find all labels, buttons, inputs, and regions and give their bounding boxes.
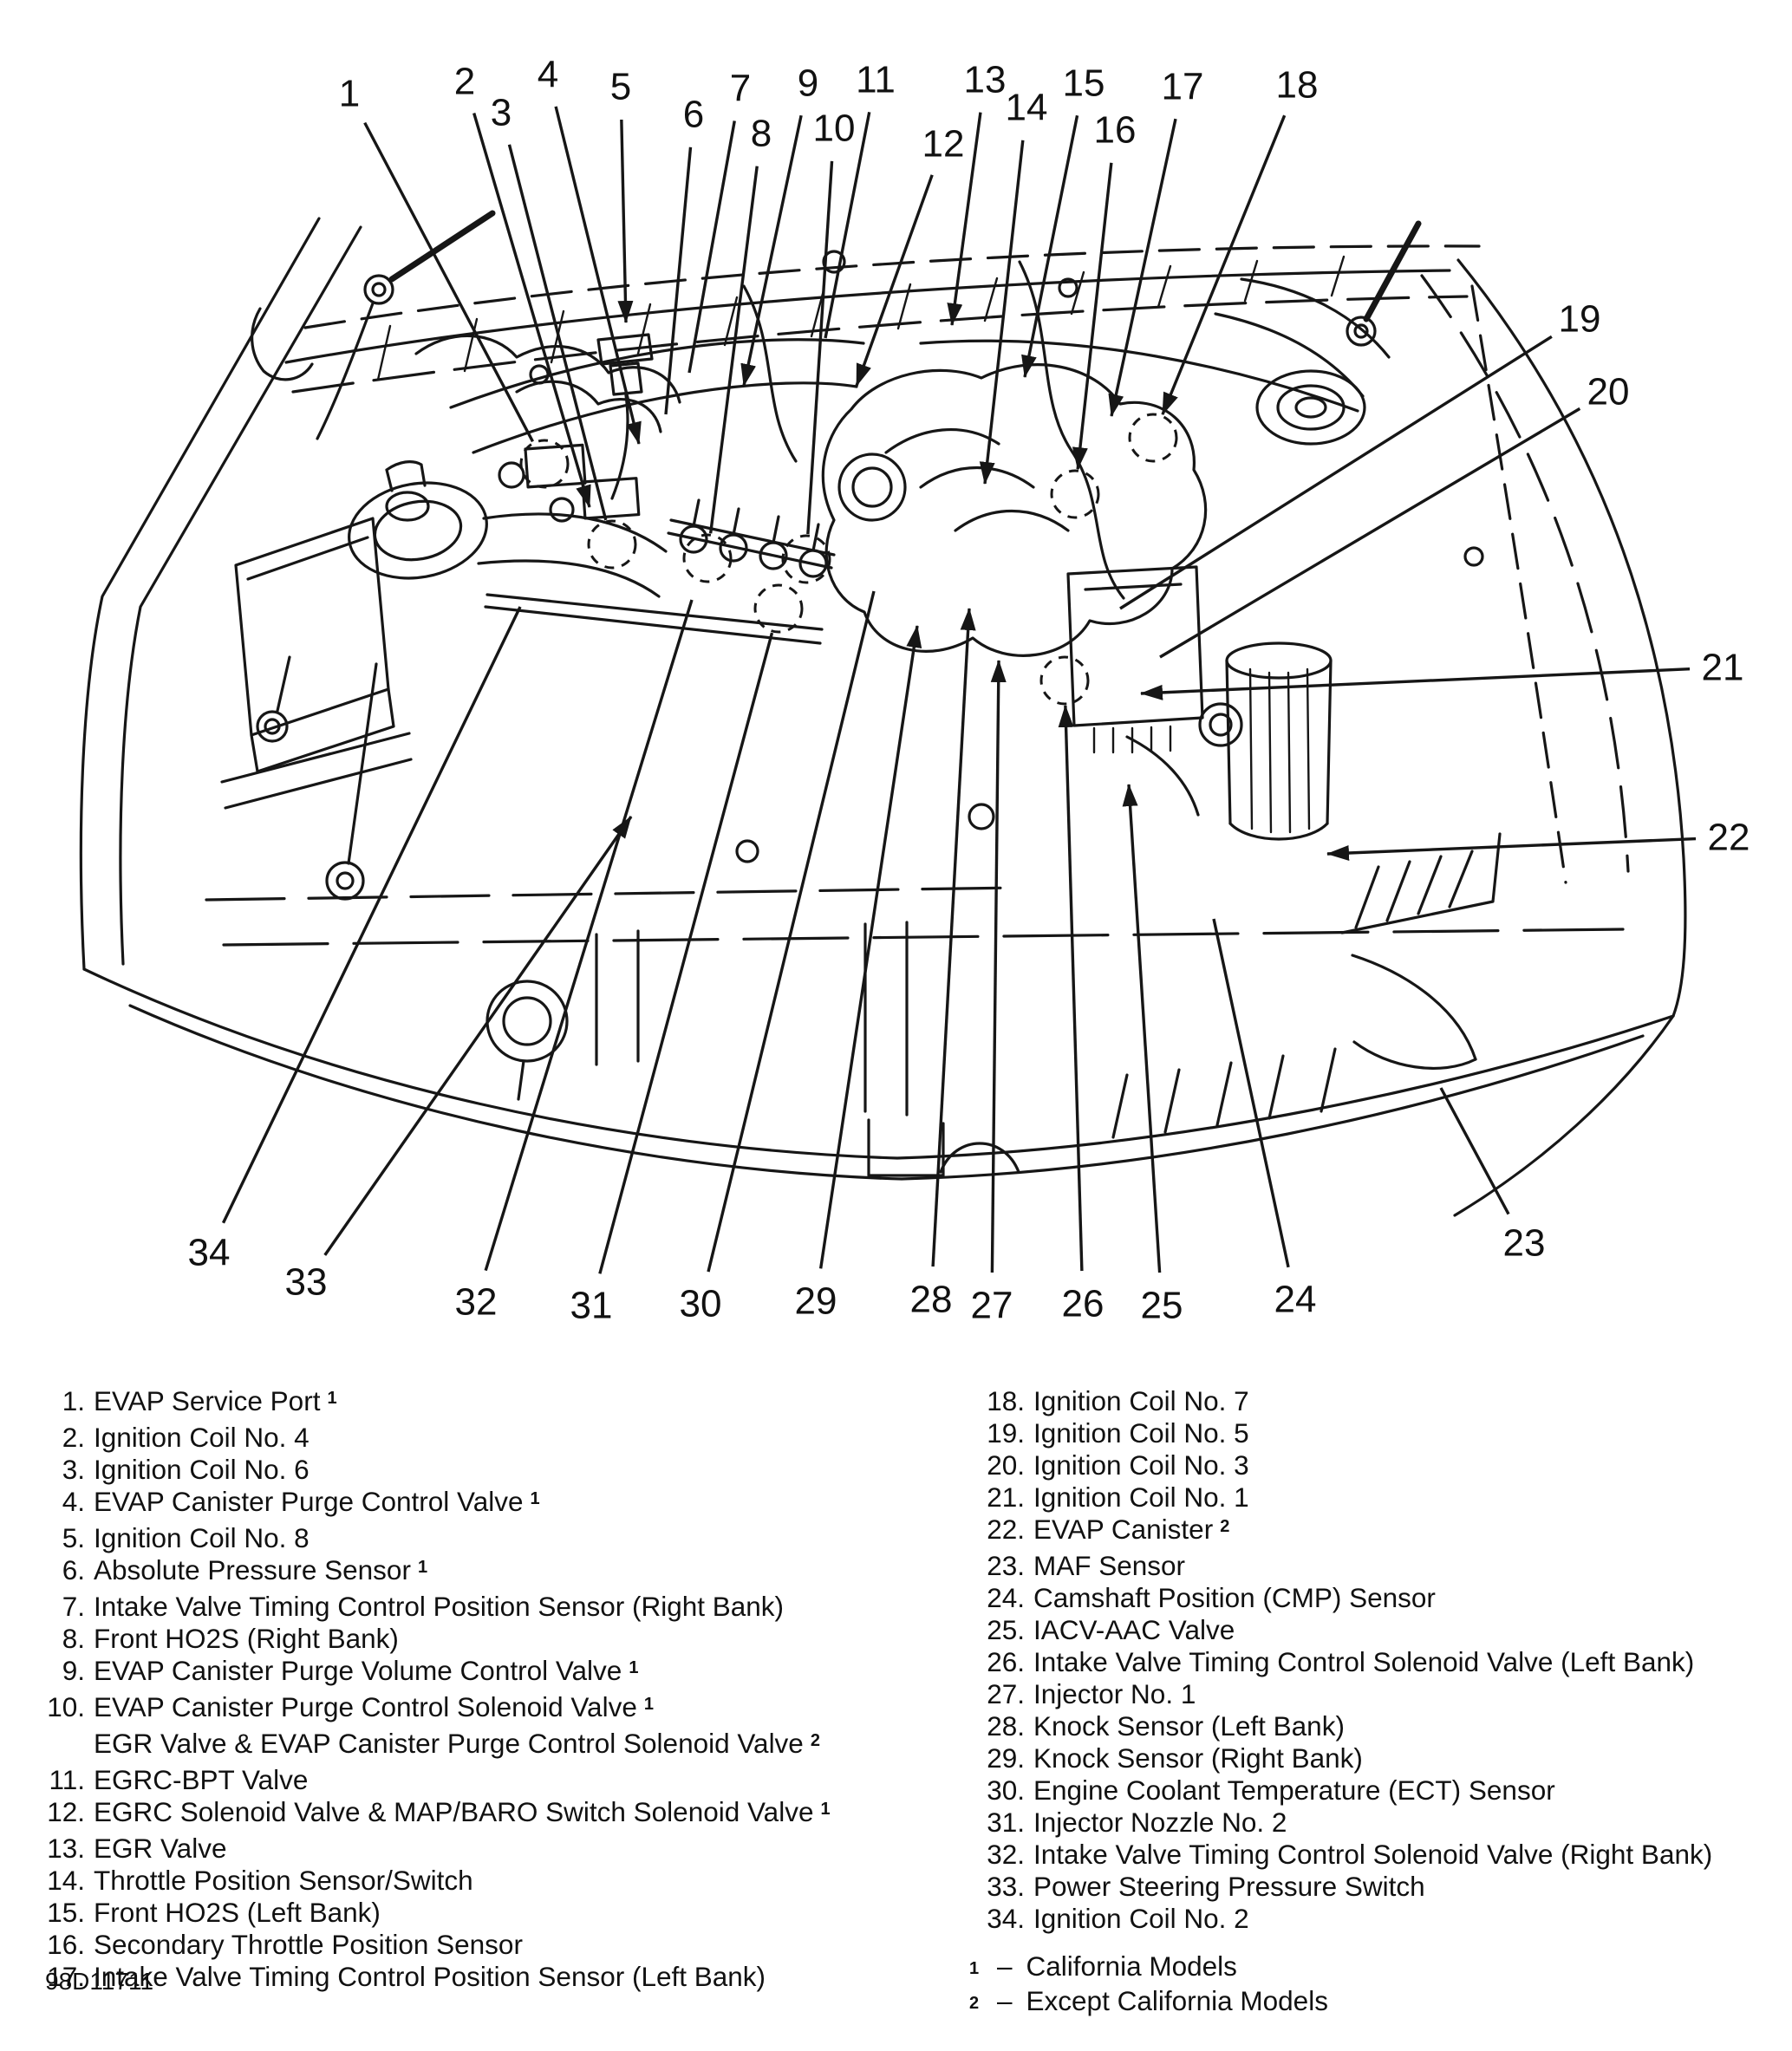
legend-item: 5.Ignition Coil No. 8	[42, 1522, 831, 1554]
legend-item-number: 19.	[969, 1417, 1025, 1449]
legend-item-label: Ignition Coil No. 2	[1033, 1903, 1249, 1935]
callout-number-10: 10	[813, 107, 856, 150]
legend-item: 24.Camshaft Position (CMP) Sensor	[969, 1582, 1712, 1614]
callout-number-13: 13	[964, 59, 1007, 101]
leader-line-33	[325, 817, 631, 1255]
legend-item-label: EGR Valve & EVAP Canister Purge Control …	[94, 1728, 820, 1764]
legend-item-label: Absolute Pressure Sensor1	[94, 1554, 427, 1591]
callout-number-31: 31	[570, 1285, 613, 1327]
legend-item: 23.MAF Sensor	[969, 1550, 1712, 1582]
callout-number-4: 4	[538, 54, 558, 96]
footnote-marker: 1	[629, 1658, 638, 1677]
legend-item-number: 5.	[42, 1522, 85, 1554]
legend-item: 32.Intake Valve Timing Control Solenoid …	[969, 1839, 1712, 1871]
legend-item-label: EVAP Canister Purge Volume Control Valve…	[94, 1655, 638, 1691]
callout-number-17: 17	[1162, 66, 1204, 108]
legend-item-number: 25.	[969, 1614, 1025, 1646]
legend-item-number: 22.	[969, 1514, 1025, 1550]
callout-number-11: 11	[856, 59, 896, 101]
legend-item-label: Secondary Throttle Position Sensor	[94, 1929, 523, 1961]
legend-item-label: EVAP Service Port1	[94, 1385, 337, 1422]
legend-item: 10.EVAP Canister Purge Control Solenoid …	[42, 1691, 831, 1728]
legend-item-label: Front HO2S (Left Bank)	[94, 1897, 381, 1929]
callout-number-7: 7	[730, 68, 751, 110]
callout-number-20: 20	[1587, 371, 1630, 413]
legend-item-label: Intake Valve Timing Control Solenoid Val…	[1033, 1646, 1694, 1678]
leader-line-19	[1120, 336, 1552, 609]
footnote-marker: 2	[811, 1731, 820, 1750]
callout-number-26: 26	[1062, 1283, 1105, 1325]
legend-item: 8.Front HO2S (Right Bank)	[42, 1623, 831, 1655]
legend-item-number: 1.	[42, 1385, 85, 1422]
leader-line-15	[1025, 115, 1078, 377]
legend-item: 6.Absolute Pressure Sensor1	[42, 1554, 831, 1591]
callout-number-28: 28	[910, 1279, 953, 1321]
legend-item: 34.Ignition Coil No. 2	[969, 1903, 1712, 1935]
engine-diagram-page: 1234567891011121314151617181920212223242…	[0, 0, 1792, 2051]
footnote-marker: 2	[969, 1988, 987, 2020]
legend-item-number: 14.	[42, 1865, 85, 1897]
legend-footnote: 1–California Models	[969, 1950, 1712, 1985]
callout-number-23: 23	[1503, 1222, 1546, 1265]
legend-item-label: EGR Valve	[94, 1833, 226, 1865]
legend-item: EGR Valve & EVAP Canister Purge Control …	[42, 1728, 831, 1764]
legend-item: 15.Front HO2S (Left Bank)	[42, 1897, 831, 1929]
footnote-marker: 1	[531, 1489, 540, 1508]
leader-line-4	[556, 107, 639, 444]
legend-item-label: Knock Sensor (Left Bank)	[1033, 1710, 1345, 1742]
legend-item-label: Ignition Coil No. 8	[94, 1522, 310, 1554]
legend-left-column: 1.EVAP Service Port12.Ignition Coil No. …	[42, 1385, 831, 1993]
legend-item-label: EGRC-BPT Valve	[94, 1764, 308, 1796]
legend-item-number: 18.	[969, 1385, 1025, 1417]
legend-item-label: Ignition Coil No. 1	[1033, 1481, 1249, 1514]
callout-number-18: 18	[1276, 64, 1319, 107]
leader-line-26	[1065, 706, 1082, 1271]
legend-footnote: 2–Except California Models	[969, 1985, 1712, 2020]
legend-item-label: Power Steering Pressure Switch	[1033, 1871, 1425, 1903]
legend-item-label: Intake Valve Timing Control Solenoid Val…	[1033, 1839, 1712, 1871]
legend-item: 13.EGR Valve	[42, 1833, 831, 1865]
legend-item: 1.EVAP Service Port1	[42, 1385, 831, 1422]
leader-line-3	[509, 145, 605, 520]
callout-number-29: 29	[795, 1280, 837, 1323]
legend-item: 7.Intake Valve Timing Control Position S…	[42, 1591, 831, 1623]
component-marker-circle	[1041, 657, 1088, 704]
footnote-label: California Models	[1026, 1950, 1237, 1985]
legend-item: 29.Knock Sensor (Right Bank)	[969, 1742, 1712, 1774]
legend-item-number: 23.	[969, 1550, 1025, 1582]
legend-item: 20.Ignition Coil No. 3	[969, 1449, 1712, 1481]
legend-item-label: Ignition Coil No. 3	[1033, 1449, 1249, 1481]
leader-line-20	[1160, 408, 1580, 657]
leader-line-30	[708, 591, 874, 1272]
callout-number-21: 21	[1702, 647, 1744, 689]
leader-line-21	[1141, 669, 1690, 693]
legend-item: 2.Ignition Coil No. 4	[42, 1422, 831, 1454]
callout-number-14: 14	[1006, 87, 1048, 129]
legend-item: 11.EGRC-BPT Valve	[42, 1764, 831, 1796]
leader-line-9	[744, 115, 801, 386]
footnote-marker: 1	[418, 1558, 427, 1577]
leader-line-12	[857, 175, 932, 386]
document-id: 98D11711	[45, 1968, 153, 1996]
legend-item-label: Ignition Coil No. 6	[94, 1454, 310, 1486]
callout-number-34: 34	[188, 1232, 231, 1274]
legend-item-number: 21.	[969, 1481, 1025, 1514]
legend-item: 18.Ignition Coil No. 7	[969, 1385, 1712, 1417]
legend-item-label: Injector Nozzle No. 2	[1033, 1807, 1287, 1839]
legend-item-number: 2.	[42, 1422, 85, 1454]
callout-number-24: 24	[1274, 1279, 1317, 1321]
callout-number-5: 5	[610, 66, 631, 108]
footnote-dash: –	[997, 1985, 1013, 2020]
legend-item-label: MAF Sensor	[1033, 1550, 1185, 1582]
legend-item-label: Knock Sensor (Right Bank)	[1033, 1742, 1363, 1774]
legend-item-label: Intake Valve Timing Control Position Sen…	[94, 1591, 784, 1623]
legend-item-number: 24.	[969, 1582, 1025, 1614]
footnote-dash: –	[997, 1950, 1013, 1985]
legend-item-number: 12.	[42, 1796, 85, 1833]
legend-item-number: 9.	[42, 1655, 85, 1691]
footnote-marker: 1	[820, 1800, 830, 1819]
legend-item-number: 11.	[42, 1764, 85, 1796]
leader-line-23	[1441, 1088, 1509, 1214]
callout-number-16: 16	[1094, 109, 1137, 152]
legend-item-number: 28.	[969, 1710, 1025, 1742]
legend-item-number: 33.	[969, 1871, 1025, 1903]
leader-line-14	[985, 140, 1023, 484]
callout-number-9: 9	[798, 62, 818, 105]
component-marker-circle	[1130, 414, 1176, 461]
callout-number-32: 32	[455, 1281, 498, 1324]
legend-item: 21.Ignition Coil No. 1	[969, 1481, 1712, 1514]
legend-item: 4.EVAP Canister Purge Control Valve1	[42, 1486, 831, 1522]
legend-item-number: 26.	[969, 1646, 1025, 1678]
legend-item: 3.Ignition Coil No. 6	[42, 1454, 831, 1486]
engine-line-art	[81, 213, 1685, 1215]
legend-item-label: EVAP Canister Purge Control Valve1	[94, 1486, 540, 1522]
legend-item-label: Ignition Coil No. 5	[1033, 1417, 1249, 1449]
legend-item-number: 7.	[42, 1591, 85, 1623]
legend-item-number: 27.	[969, 1678, 1025, 1710]
legend-item-number: 13.	[42, 1833, 85, 1865]
legend-item: 22.EVAP Canister2	[969, 1514, 1712, 1550]
legend-item-number: 8.	[42, 1623, 85, 1655]
legend-item-label: Ignition Coil No. 4	[94, 1422, 310, 1454]
leader-line-27	[992, 661, 999, 1273]
legend-item: 25.IACV-AAC Valve	[969, 1614, 1712, 1646]
legend-item-label: Ignition Coil No. 7	[1033, 1385, 1249, 1417]
legend-item-number: 15.	[42, 1897, 85, 1929]
legend-item: 33.Power Steering Pressure Switch	[969, 1871, 1712, 1903]
legend-item-number: 31.	[969, 1807, 1025, 1839]
callout-layer: 1234567891011121314151617181920212223242…	[188, 54, 1750, 1327]
legend-item: 14.Throttle Position Sensor/Switch	[42, 1865, 831, 1897]
legend-item-number: 30.	[969, 1774, 1025, 1807]
footnote-marker: 1	[644, 1695, 654, 1714]
legend-item-label: EGRC Solenoid Valve & MAP/BARO Switch So…	[94, 1796, 831, 1833]
legend-item-label: Engine Coolant Temperature (ECT) Sensor	[1033, 1774, 1555, 1807]
callout-number-3: 3	[491, 92, 512, 134]
legend-item-number: 29.	[969, 1742, 1025, 1774]
callout-number-22: 22	[1708, 817, 1750, 859]
callout-number-15: 15	[1063, 62, 1105, 105]
legend-item-label: EVAP Canister Purge Control Solenoid Val…	[94, 1691, 654, 1728]
legend-item-number: 32.	[969, 1839, 1025, 1871]
footnote-marker: 1	[969, 1953, 987, 1985]
leader-line-5	[622, 120, 626, 322]
callout-number-1: 1	[339, 73, 360, 115]
legend-item-number: 34.	[969, 1903, 1025, 1935]
legend-item: 19.Ignition Coil No. 5	[969, 1417, 1712, 1449]
callout-number-25: 25	[1141, 1285, 1183, 1327]
legend-item-number: 10.	[42, 1691, 85, 1728]
legend-footnotes: 1–California Models2–Except California M…	[969, 1950, 1712, 2020]
legend-item: 30.Engine Coolant Temperature (ECT) Sens…	[969, 1774, 1712, 1807]
legend-right-items: 18.Ignition Coil No. 719.Ignition Coil N…	[969, 1385, 1712, 1935]
legend-item-label: Front HO2S (Right Bank)	[94, 1623, 399, 1655]
leader-line-25	[1129, 785, 1160, 1273]
leader-line-10	[808, 161, 832, 534]
leader-line-16	[1078, 163, 1111, 469]
callout-number-30: 30	[680, 1283, 722, 1325]
legend-item-number: 20.	[969, 1449, 1025, 1481]
callout-number-27: 27	[971, 1285, 1013, 1327]
callout-number-33: 33	[285, 1261, 328, 1304]
legend-item: 27.Injector No. 1	[969, 1678, 1712, 1710]
legend-item-number	[42, 1728, 85, 1764]
legend-item-label: Camshaft Position (CMP) Sensor	[1033, 1582, 1436, 1614]
legend-item-label: Injector No. 1	[1033, 1678, 1196, 1710]
legend-item: 31.Injector Nozzle No. 2	[969, 1807, 1712, 1839]
footnote-label: Except California Models	[1026, 1985, 1328, 2020]
callout-number-12: 12	[922, 123, 965, 166]
callout-number-8: 8	[751, 113, 772, 155]
legend-item-number: 16.	[42, 1929, 85, 1961]
component-marker-circle	[589, 521, 635, 568]
leader-line-22	[1327, 839, 1696, 854]
legend-item-label: EVAP Canister2	[1033, 1514, 1229, 1550]
footnote-marker: 2	[1220, 1517, 1229, 1536]
legend-item-label: IACV-AAC Valve	[1033, 1614, 1235, 1646]
legend-item: 9.EVAP Canister Purge Volume Control Val…	[42, 1655, 831, 1691]
legend-item: 28.Knock Sensor (Left Bank)	[969, 1710, 1712, 1742]
legend-item: 26.Intake Valve Timing Control Solenoid …	[969, 1646, 1712, 1678]
leader-line-17	[1111, 119, 1176, 416]
legend-item: 12.EGRC Solenoid Valve & MAP/BARO Switch…	[42, 1796, 831, 1833]
legend-right-column: 18.Ignition Coil No. 719.Ignition Coil N…	[969, 1385, 1712, 2020]
callout-number-2: 2	[454, 61, 475, 103]
callout-number-6: 6	[683, 94, 704, 136]
legend-item: 17.Intake Valve Timing Control Position …	[42, 1961, 831, 1993]
legend-item: 16.Secondary Throttle Position Sensor	[42, 1929, 831, 1961]
legend-item-label: Intake Valve Timing Control Position Sen…	[94, 1961, 766, 1993]
leader-line-31	[600, 633, 772, 1273]
legend-item-label: Throttle Position Sensor/Switch	[94, 1865, 473, 1897]
legend-item-number: 6.	[42, 1554, 85, 1591]
legend-item-number: 4.	[42, 1486, 85, 1522]
footnote-marker: 1	[327, 1389, 336, 1408]
callout-number-19: 19	[1559, 298, 1601, 341]
legend-item-number: 3.	[42, 1454, 85, 1486]
engine-bay-diagram: 1234567891011121314151617181920212223242…	[0, 0, 1792, 1352]
leader-line-32	[485, 600, 692, 1271]
